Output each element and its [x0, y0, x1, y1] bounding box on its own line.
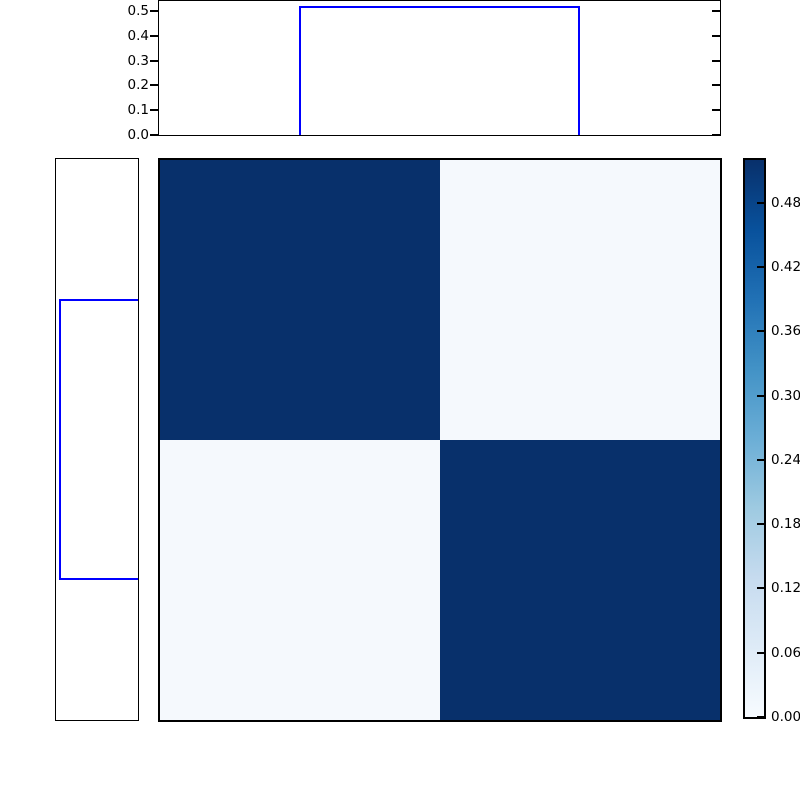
heatmap-cell-0-1 [440, 160, 720, 440]
top-marginal-ytick-label: 0.2 [103, 76, 149, 94]
top-marginal-ytick-label: 0.4 [103, 27, 149, 45]
colorbar-tick-mark [757, 395, 764, 397]
top-marginal-step-line [299, 6, 580, 135]
top-marginal-ytick-mark-left [150, 134, 158, 136]
colorbar-tick-mark [757, 652, 764, 654]
top-marginal-ytick-mark-right [712, 35, 720, 37]
colorbar-tick-mark [757, 459, 764, 461]
colorbar-tick-mark [757, 202, 764, 204]
colorbar-tick-mark [757, 587, 764, 589]
top-marginal-panel: 0.00.10.20.30.40.5 [158, 0, 721, 136]
left-marginal-panel [55, 158, 139, 721]
top-marginal-ytick-mark-left [150, 109, 158, 111]
colorbar-tick-label: 0.48 [771, 194, 800, 212]
colorbar: 0.000.060.120.180.240.300.360.420.48 [743, 158, 766, 719]
colorbar-tick-mark [757, 266, 764, 268]
colorbar-tick-label: 0.12 [771, 579, 800, 597]
top-marginal-ytick-mark-right [712, 134, 720, 136]
colorbar-tick-label: 0.30 [771, 387, 800, 405]
top-marginal-ytick-label: 0.5 [103, 2, 149, 20]
colorbar-tick-mark [757, 523, 764, 525]
heatmap-cell-1-1 [440, 440, 720, 720]
colorbar-gradient [745, 160, 764, 717]
left-marginal-step-line [59, 299, 138, 580]
top-marginal-ytick-label: 0.0 [103, 126, 149, 144]
heatmap-cell-0-0 [160, 160, 440, 440]
top-marginal-ytick-label: 0.3 [103, 52, 149, 70]
top-marginal-ytick-mark-right [712, 109, 720, 111]
top-marginal-ytick-mark-right [712, 84, 720, 86]
top-marginal-ytick-mark-left [150, 10, 158, 12]
colorbar-tick-label: 0.06 [771, 644, 800, 662]
colorbar-tick-mark [757, 330, 764, 332]
joint-distribution-figure: 0.00.10.20.30.40.5 0.000.060.120.180.240… [0, 0, 800, 800]
colorbar-tick-label: 0.00 [771, 708, 800, 726]
top-marginal-ytick-mark-right [712, 60, 720, 62]
top-marginal-ytick-mark-left [150, 60, 158, 62]
colorbar-tick-label: 0.42 [771, 258, 800, 276]
heatmap-cell-1-0 [160, 440, 440, 720]
top-marginal-ytick-mark-right [712, 10, 720, 12]
top-marginal-ytick-mark-left [150, 84, 158, 86]
heatmap-matrix [158, 158, 722, 722]
colorbar-tick-label: 0.18 [771, 515, 800, 533]
top-marginal-ytick-mark-left [150, 35, 158, 37]
top-marginal-ytick-label: 0.1 [103, 101, 149, 119]
colorbar-tick-mark [757, 716, 764, 718]
colorbar-tick-label: 0.24 [771, 451, 800, 469]
colorbar-tick-label: 0.36 [771, 322, 800, 340]
